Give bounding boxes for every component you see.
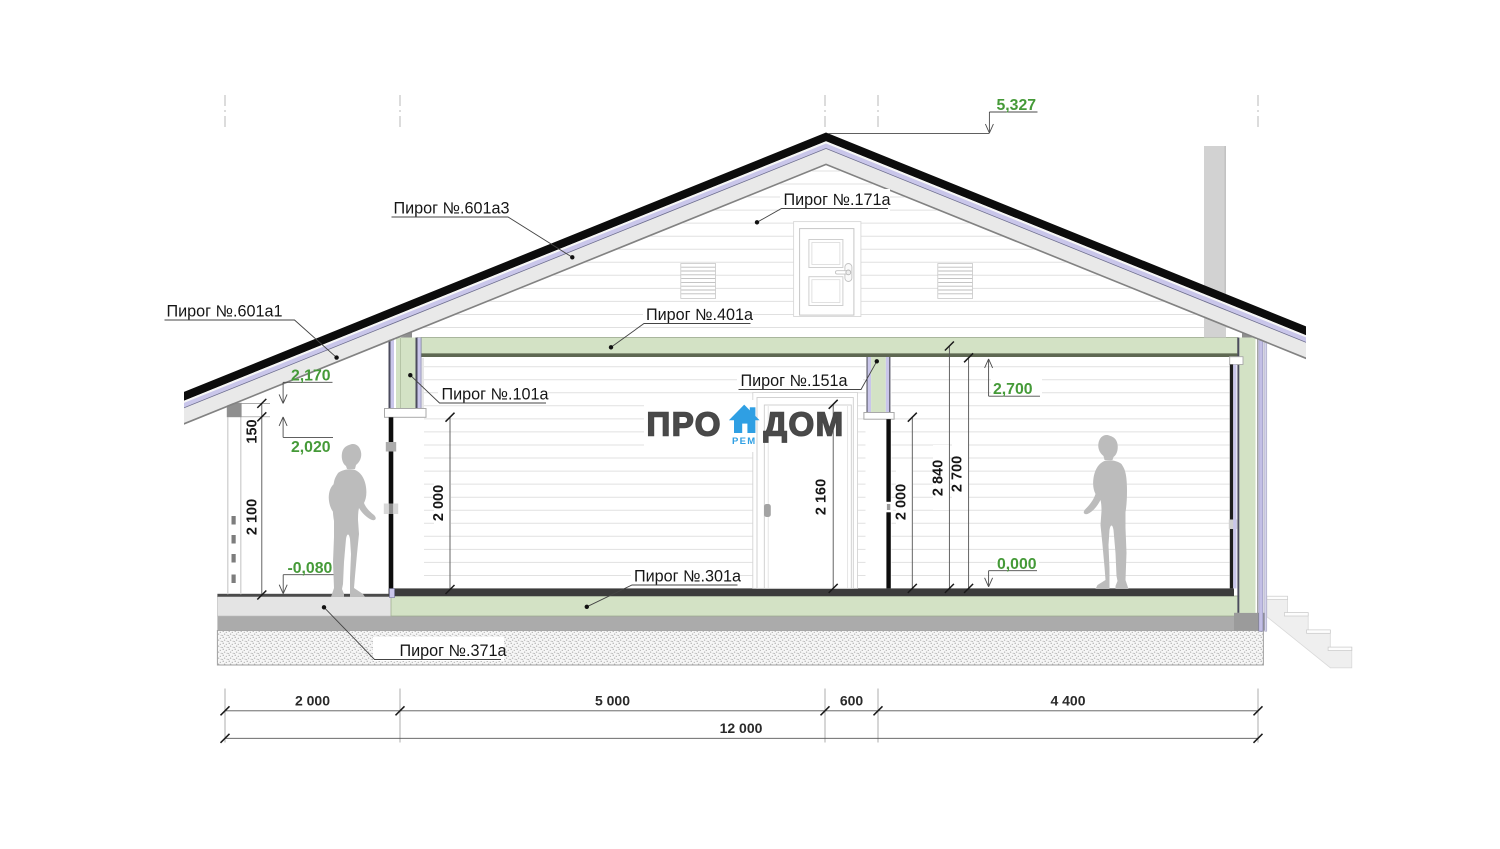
svg-text:-0,080: -0,080 bbox=[288, 560, 333, 577]
svg-text:2,170: 2,170 bbox=[291, 367, 331, 384]
svg-text:ПРО: ПРО bbox=[647, 406, 722, 443]
svg-text:Пирог №.171а: Пирог №.171а bbox=[784, 191, 891, 209]
svg-text:2 700: 2 700 bbox=[950, 456, 966, 492]
svg-text:12 000: 12 000 bbox=[720, 720, 763, 736]
svg-text:2 840: 2 840 bbox=[930, 460, 946, 496]
svg-text:Пирог №.301а: Пирог №.301а bbox=[634, 568, 741, 586]
svg-text:ДОМ: ДОМ bbox=[764, 406, 845, 443]
svg-text:2 000: 2 000 bbox=[295, 692, 330, 708]
svg-text:2 000: 2 000 bbox=[893, 484, 909, 520]
svg-text:600: 600 bbox=[840, 692, 864, 708]
svg-text:2,020: 2,020 bbox=[291, 439, 331, 456]
svg-text:2 000: 2 000 bbox=[431, 485, 447, 521]
svg-text:Пирог №.101а: Пирог №.101а bbox=[442, 386, 549, 404]
svg-text:Пирог №.371а: Пирог №.371а bbox=[400, 642, 507, 660]
svg-text:2 160: 2 160 bbox=[814, 479, 830, 515]
svg-text:4 400: 4 400 bbox=[1050, 692, 1085, 708]
svg-text:5,327: 5,327 bbox=[997, 97, 1037, 114]
svg-text:Пирог №.151а: Пирог №.151а bbox=[741, 372, 848, 390]
svg-text:5 000: 5 000 bbox=[595, 692, 630, 708]
svg-text:Пирог №.601а1: Пирог №.601а1 bbox=[167, 303, 283, 321]
svg-text:Пирог №.401а: Пирог №.401а bbox=[646, 306, 753, 324]
svg-text:150: 150 bbox=[245, 419, 261, 443]
svg-text:2 100: 2 100 bbox=[245, 499, 261, 535]
svg-text:Пирог №.601а3: Пирог №.601а3 bbox=[394, 200, 510, 218]
svg-text:0,000: 0,000 bbox=[997, 556, 1037, 573]
svg-text:РЕМ: РЕМ bbox=[732, 436, 757, 447]
svg-text:2,700: 2,700 bbox=[993, 381, 1033, 398]
